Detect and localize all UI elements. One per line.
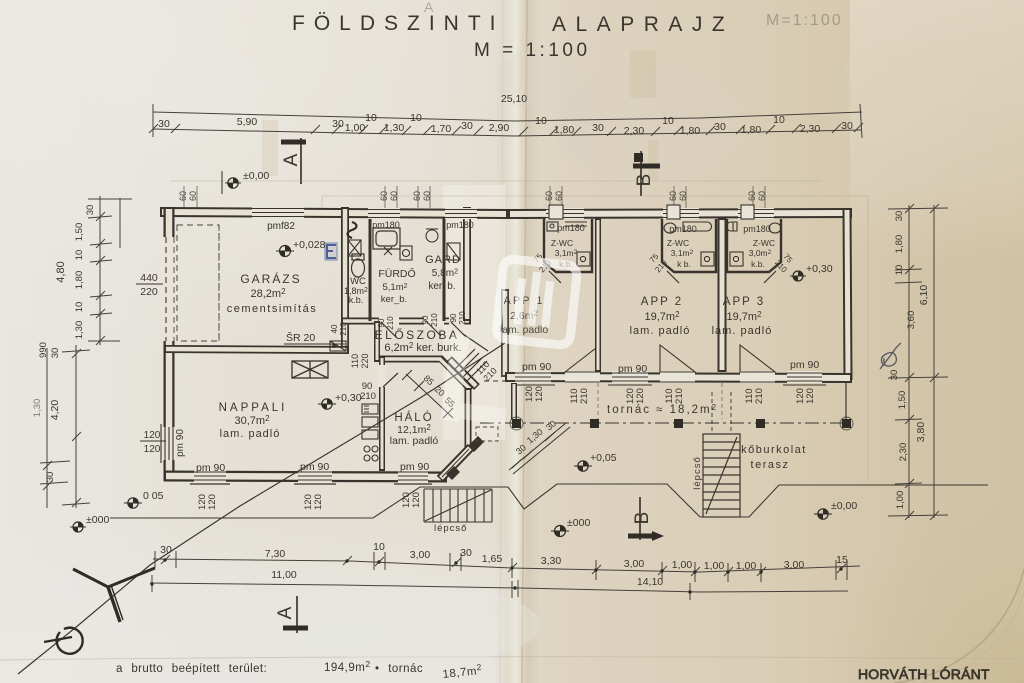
svg-text:• tornác: • tornác — [375, 663, 423, 675]
svg-text:+0,05: +0,05 — [590, 452, 617, 464]
svg-text:2,30: 2,30 — [800, 123, 821, 135]
svg-text:60: 60 — [747, 191, 757, 201]
svg-text:+0,028: +0,028 — [293, 239, 326, 251]
svg-text:30: 30 — [841, 120, 853, 132]
svg-text:FÜRDŐ: FÜRDŐ — [378, 266, 415, 280]
svg-text:±0,00: ±0,00 — [243, 170, 269, 182]
svg-text:+0,30: +0,30 — [806, 263, 833, 275]
svg-text:120: 120 — [805, 388, 816, 404]
svg-text:220: 220 — [360, 353, 370, 368]
svg-text:1,00: 1,00 — [345, 122, 366, 134]
svg-text:10: 10 — [373, 541, 385, 553]
svg-text:3,00: 3,00 — [784, 559, 805, 571]
svg-text:3,80: 3,80 — [915, 422, 927, 443]
svg-text:60: 60 — [678, 191, 688, 201]
svg-text:120: 120 — [534, 386, 545, 402]
svg-text:NAPPALI: NAPPALI — [219, 402, 288, 414]
svg-text:6,10: 6,10 — [918, 285, 930, 306]
svg-text:210: 210 — [386, 316, 395, 330]
svg-text:440: 440 — [140, 272, 158, 284]
svg-text:pm 90: pm 90 — [175, 429, 186, 457]
svg-text:60: 60 — [554, 191, 564, 201]
svg-text:25,10: 25,10 — [501, 93, 527, 105]
svg-text:FÖLDSZINTI: FÖLDSZINTI — [292, 12, 505, 35]
svg-text:120: 120 — [635, 388, 646, 404]
svg-text:990: 990 — [38, 342, 49, 358]
svg-text:pm 90: pm 90 — [618, 363, 647, 375]
svg-text:pm 90: pm 90 — [790, 359, 819, 371]
svg-text:pm 90: pm 90 — [522, 361, 551, 373]
svg-text:90: 90 — [421, 315, 430, 324]
svg-text:30: 30 — [50, 348, 61, 359]
svg-text:3,30: 3,30 — [541, 555, 562, 567]
svg-text:4,80: 4,80 — [55, 261, 67, 282]
svg-text:+0,30: +0,30 — [335, 392, 362, 404]
svg-text:210: 210 — [458, 311, 467, 325]
svg-text:pm180: pm180 — [669, 224, 697, 234]
svg-text:3,00: 3,00 — [410, 549, 431, 561]
svg-text:ŠR 20: ŠR 20 — [286, 331, 315, 344]
svg-text:lam. padló: lam. padló — [220, 428, 281, 440]
svg-text:120: 120 — [313, 494, 324, 510]
svg-text:ker, b.: ker, b. — [428, 281, 455, 292]
svg-text:10: 10 — [74, 250, 85, 261]
svg-text:30: 30 — [332, 118, 344, 130]
svg-text:120: 120 — [144, 430, 161, 441]
svg-text:30: 30 — [889, 370, 900, 381]
svg-text:220: 220 — [140, 286, 158, 298]
svg-text:10: 10 — [535, 115, 547, 127]
svg-text:lam. padló: lam. padló — [500, 324, 549, 336]
svg-text:30: 30 — [714, 121, 726, 133]
svg-text:0 05: 0 05 — [143, 490, 164, 502]
svg-text:±0,00: ±0,00 — [831, 500, 857, 512]
svg-text:60: 60 — [379, 191, 389, 201]
svg-text:194,9m2: 194,9m2 — [324, 659, 371, 674]
svg-text:1,80: 1,80 — [74, 271, 85, 290]
svg-text:10: 10 — [662, 115, 674, 127]
svg-text:1,00: 1,00 — [736, 560, 757, 572]
svg-text:60: 60 — [188, 191, 198, 201]
svg-text:pm 90: pm 90 — [400, 461, 429, 473]
svg-text:lam. padló: lam. padló — [390, 435, 439, 447]
svg-text:1,70: 1,70 — [431, 123, 452, 135]
svg-text:A: A — [275, 606, 296, 619]
svg-text:120: 120 — [144, 444, 161, 455]
svg-text:1,80: 1,80 — [554, 124, 575, 136]
svg-text:210: 210 — [579, 388, 590, 404]
svg-text:HORVÁTH LÓRÁNT: HORVÁTH LÓRÁNT — [858, 666, 990, 682]
svg-text:15: 15 — [836, 554, 848, 566]
svg-text:1,30: 1,30 — [74, 321, 85, 340]
svg-text:14,10: 14,10 — [637, 576, 663, 588]
svg-text:GARD: GARD — [425, 254, 461, 266]
svg-text:pm 90: pm 90 — [196, 462, 225, 474]
svg-text:A: A — [281, 153, 302, 166]
svg-text:lépcső: lépcső — [692, 456, 703, 489]
svg-text:±000: ±000 — [86, 514, 109, 526]
svg-text:APP 2: APP 2 — [641, 296, 683, 308]
svg-text:cementsimítás: cementsimítás — [227, 303, 317, 315]
svg-text:k.b.: k.b. — [349, 295, 364, 305]
svg-text:60: 60 — [422, 191, 432, 201]
svg-text:30: 30 — [158, 118, 170, 130]
svg-text:ALAPRAJZ: ALAPRAJZ — [552, 13, 734, 36]
svg-text:120: 120 — [207, 494, 218, 510]
svg-text:±000: ±000 — [567, 517, 590, 529]
svg-text:60: 60 — [668, 191, 678, 201]
svg-text:210: 210 — [360, 391, 376, 402]
svg-text:pm180: pm180 — [743, 224, 771, 234]
svg-text:10: 10 — [894, 265, 905, 276]
svg-text:pm180: pm180 — [446, 220, 474, 230]
svg-text:1,80: 1,80 — [680, 125, 701, 137]
svg-text:30: 30 — [894, 211, 905, 222]
svg-text:110: 110 — [350, 354, 360, 368]
svg-text:lam. padló: lam. padló — [712, 325, 773, 337]
svg-text:2,30: 2,30 — [898, 443, 909, 462]
svg-text:pm180: pm180 — [557, 223, 585, 233]
svg-text:B: B — [632, 512, 653, 525]
svg-text:1,80: 1,80 — [894, 235, 905, 254]
svg-text:28,2m2: 28,2m2 — [250, 287, 286, 300]
svg-text:pm180: pm180 — [372, 220, 400, 230]
svg-text:1,50: 1,50 — [897, 391, 908, 410]
svg-text:60: 60 — [544, 191, 554, 201]
svg-text:3,00: 3,00 — [624, 558, 645, 570]
svg-text:210: 210 — [339, 322, 348, 336]
svg-text:60: 60 — [178, 191, 188, 201]
svg-text:10: 10 — [74, 302, 85, 313]
svg-text:M = 1:100: M = 1:100 — [474, 40, 591, 61]
svg-text:4,20: 4,20 — [49, 400, 61, 421]
svg-text:30: 30 — [460, 547, 472, 559]
svg-text:210: 210 — [430, 313, 439, 327]
svg-text:30: 30 — [461, 120, 473, 132]
svg-text:11,00: 11,00 — [271, 569, 297, 581]
svg-text:terasz: terasz — [751, 459, 790, 471]
svg-text:GARÁZS: GARÁZS — [240, 271, 301, 286]
svg-text:7,30: 7,30 — [265, 548, 286, 560]
svg-text:1,50: 1,50 — [74, 223, 85, 242]
svg-text:B: B — [634, 174, 655, 187]
svg-text:1,00: 1,00 — [704, 560, 725, 572]
svg-text:10: 10 — [773, 114, 785, 126]
svg-text:30,7m2: 30,7m2 — [234, 414, 270, 427]
svg-text:2,90: 2,90 — [489, 122, 510, 134]
svg-text:30: 30 — [85, 205, 96, 216]
svg-text:1,00: 1,00 — [895, 491, 906, 510]
svg-text:30: 30 — [45, 472, 56, 483]
svg-text:tornác ≈ 18,2m2: tornác ≈ 18,2m2 — [607, 403, 718, 416]
svg-text:10: 10 — [410, 112, 422, 124]
svg-text:19,7m2: 19,7m2 — [644, 310, 680, 323]
svg-text:pm 90: pm 90 — [300, 461, 329, 473]
svg-text:ker_b.: ker_b. — [381, 294, 407, 305]
svg-text:1,30: 1,30 — [32, 399, 43, 418]
svg-text:lépcső: lépcső — [434, 523, 467, 534]
svg-text:1,30: 1,30 — [384, 122, 405, 134]
svg-text:10: 10 — [365, 112, 377, 124]
svg-text:60: 60 — [412, 191, 422, 201]
svg-text:19,7m2: 19,7m2 — [726, 310, 762, 323]
svg-text:60: 60 — [389, 191, 399, 201]
svg-text:1,65: 1,65 — [482, 553, 503, 565]
svg-text:2,30: 2,30 — [624, 125, 645, 137]
svg-text:lam. padló: lam. padló — [630, 325, 691, 337]
svg-text:3,60: 3,60 — [906, 311, 917, 330]
svg-text:a brutto beépített terület:: a brutto beépített terület: — [116, 663, 267, 675]
svg-text:1,00: 1,00 — [672, 559, 693, 571]
svg-text:30: 30 — [160, 544, 172, 556]
svg-text:k b.: k b. — [677, 259, 691, 269]
svg-text:Z-WC: Z-WC — [551, 238, 573, 248]
svg-text:APP 3: APP 3 — [723, 296, 765, 308]
svg-text:90: 90 — [449, 313, 458, 322]
svg-text:5,90: 5,90 — [237, 116, 258, 128]
svg-text:Z-WC: Z-WC — [753, 238, 775, 248]
svg-text:60: 60 — [757, 191, 767, 201]
svg-text:90: 90 — [377, 318, 386, 327]
svg-text:120: 120 — [411, 492, 422, 508]
svg-text:210: 210 — [754, 388, 765, 404]
svg-text:40: 40 — [330, 324, 339, 333]
svg-text:210: 210 — [674, 388, 685, 404]
svg-text:M=1:100: M=1:100 — [766, 12, 843, 29]
svg-text:pmf82: pmf82 — [267, 221, 295, 232]
svg-text:30: 30 — [592, 122, 604, 134]
svg-text:k.b.: k.b. — [751, 259, 765, 269]
svg-text:Z-WC: Z-WC — [667, 238, 689, 248]
svg-text:1,80: 1,80 — [741, 124, 762, 136]
svg-text:kőburkolat: kőburkolat — [741, 444, 807, 456]
